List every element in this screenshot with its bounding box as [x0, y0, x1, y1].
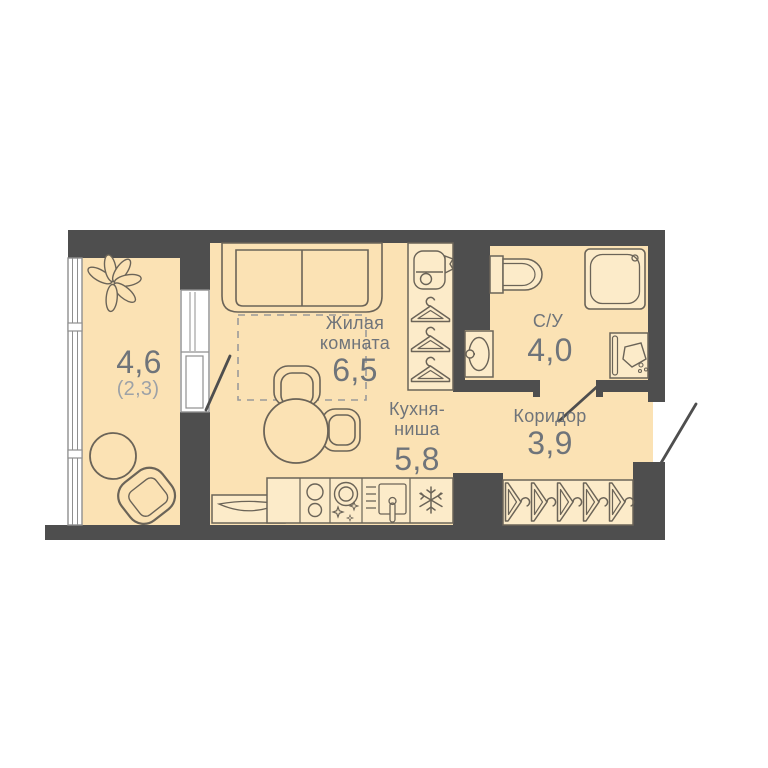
- balcony-area: 4,6: [101, 345, 177, 379]
- entry-door-leaf: [661, 404, 696, 463]
- balcony-area-secondary: (2,3): [100, 378, 176, 400]
- wardrobe: [408, 243, 453, 390]
- kitchen-counter: [267, 478, 453, 523]
- toilet-icon: [490, 256, 542, 293]
- balcony-table-icon: [90, 433, 136, 479]
- living-room-label: Жилая комната: [303, 313, 407, 353]
- door-jamb: [533, 392, 540, 397]
- door-jamb: [596, 392, 603, 397]
- window-glazing-icon: [68, 258, 82, 525]
- wall-top-balcony: [68, 230, 180, 258]
- wall-top-living: [180, 230, 457, 243]
- hall-closet: [503, 480, 634, 525]
- washbasin-icon: [465, 331, 493, 377]
- wall-right-upper: [648, 246, 665, 402]
- washing-machine-icon: [610, 333, 648, 378]
- living-room-label-line2: комната: [303, 333, 407, 353]
- entry-threshold: [648, 402, 653, 462]
- wall-balcony-divider-bottom: [180, 412, 210, 525]
- wall-bathroom-bottom-left: [453, 380, 540, 392]
- kitchen-label: Кухня- ниша: [365, 399, 469, 439]
- shower-icon: [585, 249, 645, 309]
- living-room-area: 6,5: [317, 353, 393, 387]
- floorplan-canvas: Жилая комната 6,5 Кухня- ниша 5,8 Коридо…: [0, 0, 768, 768]
- wall-right-lower: [633, 462, 665, 525]
- living-room-label-line1: Жилая: [303, 313, 407, 333]
- wall-bottom: [45, 525, 665, 540]
- wall-balcony-divider-top: [180, 243, 210, 290]
- wall-closet-stub: [453, 473, 503, 525]
- kitchen-area: 5,8: [379, 442, 455, 476]
- wall-bathroom-bottom-right: [596, 380, 648, 392]
- sofa-icon: [222, 243, 382, 312]
- corridor-area: 3,9: [512, 426, 588, 460]
- kitchen-label-line2: ниша: [365, 419, 469, 439]
- kitchen-label-line1: Кухня-: [365, 399, 469, 419]
- balcony-door-window: [181, 290, 209, 412]
- dining-table-icon: [264, 399, 328, 463]
- corridor-label: Коридор: [498, 406, 602, 426]
- wall-shaft: [453, 243, 490, 330]
- bathroom-label: С/У: [496, 311, 600, 331]
- bathroom-area: 4,0: [512, 333, 588, 367]
